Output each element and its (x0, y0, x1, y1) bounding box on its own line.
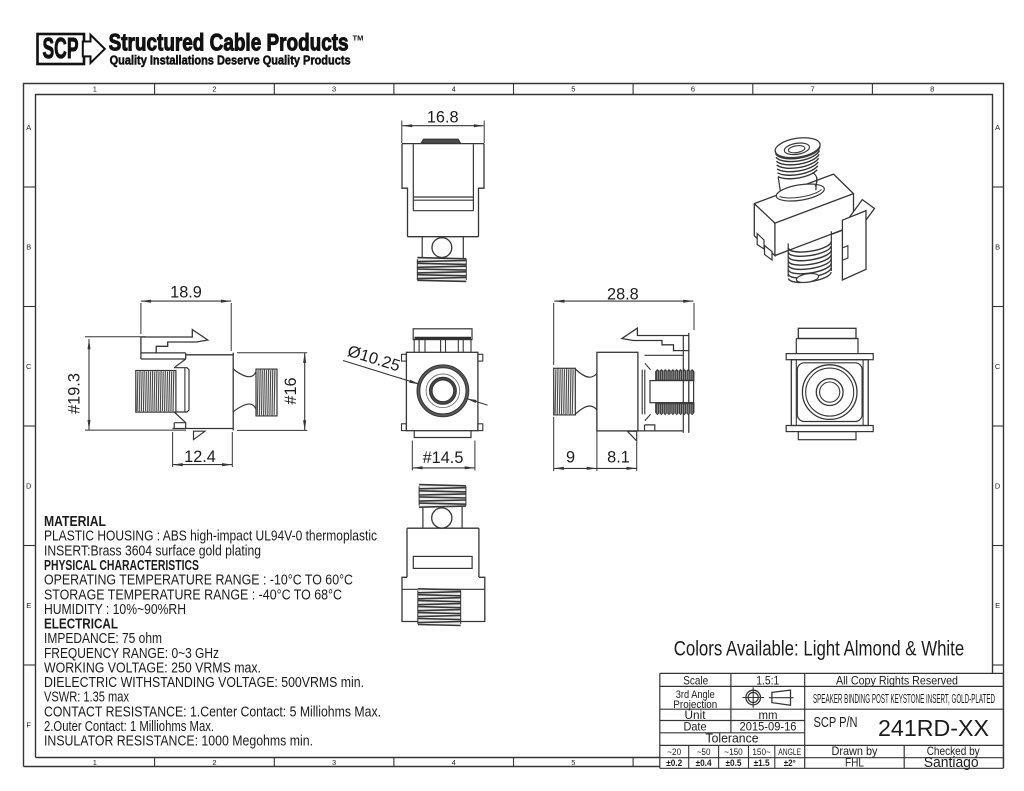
svg-text:C: C (995, 362, 1001, 371)
svg-text:All Copy Rights Reserved: All Copy Rights Reserved (836, 673, 958, 687)
svg-text:A: A (995, 123, 1000, 132)
svg-text:5: 5 (571, 758, 575, 767)
svg-text:SPEAKER BINDING POST KEYSTONE: SPEAKER BINDING POST KEYSTONE INSERT, GO… (813, 691, 995, 706)
svg-text:#16: #16 (282, 377, 300, 404)
svg-text:16.8: 16.8 (427, 109, 459, 127)
svg-text:C: C (26, 362, 32, 371)
svg-text:2: 2 (212, 758, 216, 767)
svg-text:SCP: SCP (43, 33, 79, 65)
svg-text:3: 3 (332, 758, 336, 767)
svg-text:#14.5: #14.5 (423, 449, 464, 467)
svg-text:FHL: FHL (845, 757, 864, 770)
svg-text:Quality Installations Deserve: Quality Installations Deserve Quality Pr… (110, 53, 351, 68)
svg-text:241RD-XX: 241RD-XX (878, 715, 989, 741)
svg-text:Colors Available: Light Almond: Colors Available: Light Almond & White (674, 638, 965, 661)
svg-text:E: E (995, 601, 1000, 610)
svg-text:8: 8 (930, 85, 934, 94)
svg-text:1: 1 (93, 85, 97, 94)
svg-text:F: F (26, 720, 31, 729)
svg-text:1.5:1: 1.5:1 (756, 674, 779, 687)
svg-text:B: B (26, 242, 31, 251)
svg-text:Tolerance: Tolerance (706, 731, 759, 746)
svg-text:D: D (995, 481, 1001, 490)
svg-text:Santiago: Santiago (924, 755, 979, 771)
svg-text:9: 9 (566, 449, 575, 467)
svg-text:150~: 150~ (752, 747, 770, 757)
svg-text:7: 7 (811, 85, 815, 94)
svg-text:8.1: 8.1 (607, 449, 630, 467)
svg-text:SCP P/N: SCP P/N (814, 715, 858, 731)
svg-text:12.4: 12.4 (184, 448, 216, 466)
svg-text:E: E (26, 601, 31, 610)
svg-text:18.9: 18.9 (170, 284, 202, 302)
svg-text:±2°: ±2° (784, 758, 796, 768)
svg-text:±0.4: ±0.4 (696, 758, 713, 768)
svg-text:Scale: Scale (683, 674, 708, 687)
svg-text:Date: Date (684, 720, 707, 734)
svg-text:5: 5 (571, 85, 575, 94)
svg-text:3: 3 (332, 85, 336, 94)
svg-text:INSULATOR RESISTANCE: 1000 Meg: INSULATOR RESISTANCE: 1000 Megohms min. (44, 733, 313, 750)
svg-text:6: 6 (691, 85, 695, 94)
svg-text:±0.2: ±0.2 (666, 758, 682, 768)
svg-text:A: A (26, 123, 31, 132)
svg-text:D: D (26, 481, 32, 490)
svg-text:#19.3: #19.3 (66, 373, 84, 414)
svg-text:2: 2 (212, 85, 216, 94)
svg-text:~50: ~50 (697, 747, 711, 757)
svg-text:TM: TM (353, 34, 364, 43)
svg-text:ANGLE: ANGLE (778, 747, 801, 757)
svg-text:4: 4 (452, 85, 456, 94)
svg-text:B: B (995, 242, 1000, 251)
svg-text:~150: ~150 (724, 747, 742, 757)
svg-text:±0.5: ±0.5 (726, 758, 742, 768)
svg-text:~20: ~20 (667, 747, 681, 757)
svg-text:1: 1 (93, 758, 97, 767)
svg-text:±1.5: ±1.5 (754, 758, 770, 768)
svg-text:4: 4 (452, 758, 456, 767)
